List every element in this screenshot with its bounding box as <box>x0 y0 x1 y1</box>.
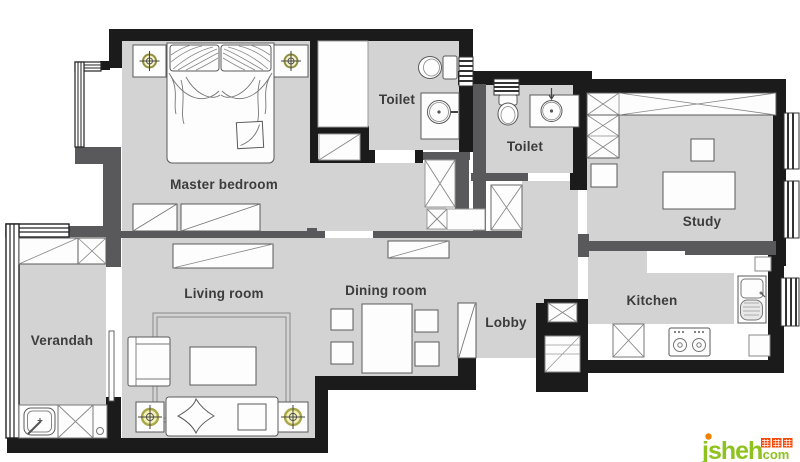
svg-text:Toilet: Toilet <box>507 139 544 154</box>
svg-text:Master bedroom: Master bedroom <box>170 177 278 192</box>
svg-text:Living room: Living room <box>184 286 263 301</box>
svg-text:Lobby: Lobby <box>485 315 527 330</box>
svg-text:Study: Study <box>683 214 722 229</box>
svg-text:jsheh: jsheh <box>701 437 762 462</box>
svg-text:Dining room: Dining room <box>345 283 427 298</box>
svg-text:Kitchen: Kitchen <box>627 293 678 308</box>
svg-text:.com: .com <box>759 447 789 462</box>
svg-text:Verandah: Verandah <box>31 333 93 348</box>
svg-text:Toilet: Toilet <box>379 92 416 107</box>
